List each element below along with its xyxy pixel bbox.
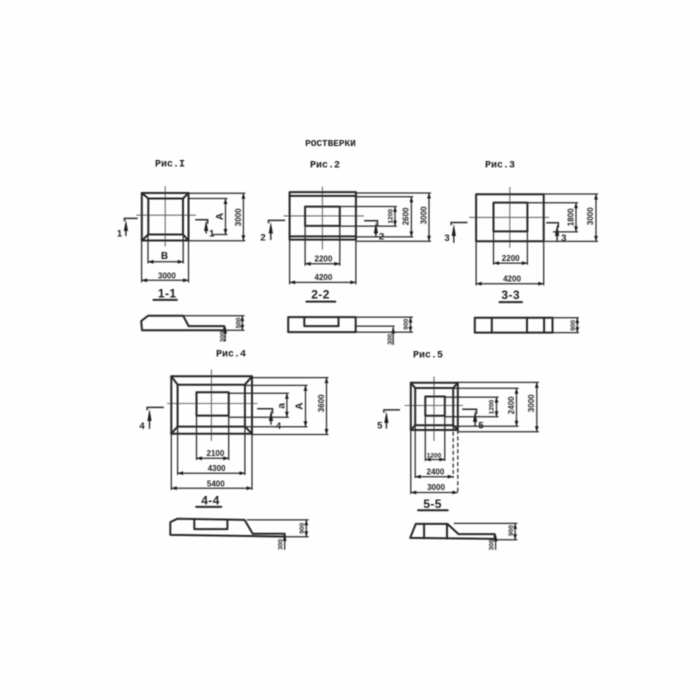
svg-text:3: 3 [444,233,449,244]
svg-text:Рис.4: Рис.4 [216,350,246,361]
svg-text:2600: 2600 [402,207,411,225]
svg-text:300: 300 [219,331,226,342]
svg-text:А: А [295,402,306,409]
svg-text:3000: 3000 [419,206,428,224]
svg-text:4200: 4200 [315,273,333,282]
svg-text:А: А [215,213,226,220]
svg-text:1-1: 1-1 [158,286,177,300]
svg-text:5: 5 [377,420,383,431]
svg-text:900: 900 [508,525,515,536]
svg-text:1: 1 [117,229,123,240]
svg-text:1200: 1200 [427,453,442,460]
svg-text:1800: 1800 [566,208,575,226]
svg-text:300: 300 [278,539,285,550]
svg-text:РОСТВЕРКИ: РОСТВЕРКИ [305,138,356,149]
svg-text:3000: 3000 [586,207,595,225]
svg-text:2200: 2200 [502,254,520,263]
svg-text:5400: 5400 [207,480,225,489]
svg-text:3000: 3000 [234,208,243,226]
svg-text:900: 900 [403,318,410,329]
svg-text:2100: 2100 [207,449,225,458]
svg-text:3000: 3000 [158,272,176,281]
svg-text:500: 500 [235,317,242,328]
svg-text:300: 300 [488,539,495,550]
svg-text:4-4: 4-4 [201,493,220,507]
svg-text:Рис.I: Рис.I [155,160,185,171]
svg-text:В: В [161,251,168,262]
svg-text:2400: 2400 [507,396,516,414]
svg-text:3-3: 3-3 [501,288,520,302]
svg-text:4200: 4200 [503,274,521,283]
svg-text:900: 900 [299,522,306,533]
svg-text:1200: 1200 [388,209,395,224]
svg-text:3000: 3000 [527,394,536,412]
svg-text:5-5: 5-5 [423,497,442,511]
svg-text:а: а [276,403,287,409]
svg-text:300: 300 [387,333,394,344]
svg-text:Рис.2: Рис.2 [310,161,340,172]
svg-text:1200: 1200 [488,399,495,414]
svg-text:3: 3 [561,233,566,244]
svg-text:2400: 2400 [427,467,445,476]
svg-text:3000: 3000 [427,483,445,492]
svg-text:900: 900 [570,320,577,331]
svg-text:2: 2 [260,233,265,244]
svg-text:Рис.5: Рис.5 [413,351,443,362]
svg-text:2-2: 2-2 [311,288,330,302]
svg-text:3600: 3600 [317,394,326,412]
svg-text:Рис.3: Рис.3 [485,161,515,172]
svg-text:4: 4 [139,421,145,432]
svg-text:2200: 2200 [315,255,333,264]
svg-text:4300: 4300 [208,464,226,473]
